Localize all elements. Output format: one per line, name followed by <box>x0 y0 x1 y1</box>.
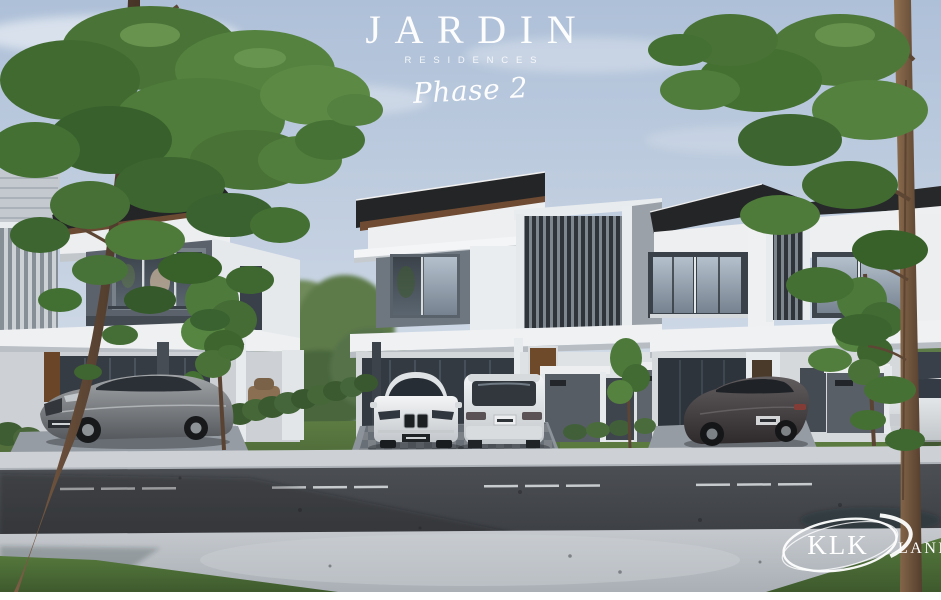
render-canvas: JARDIN RESIDENCES Phase 2 KLK LAND <box>0 0 941 600</box>
klk-land-logo: KLK LAND <box>772 506 941 584</box>
land-logo-text: LAND <box>898 540 941 557</box>
image-bottom-border <box>0 592 941 600</box>
klk-logo-text: KLK <box>807 530 869 560</box>
entrance-door <box>44 352 60 402</box>
louver-screen <box>522 216 625 328</box>
white-suv-car <box>464 374 544 448</box>
